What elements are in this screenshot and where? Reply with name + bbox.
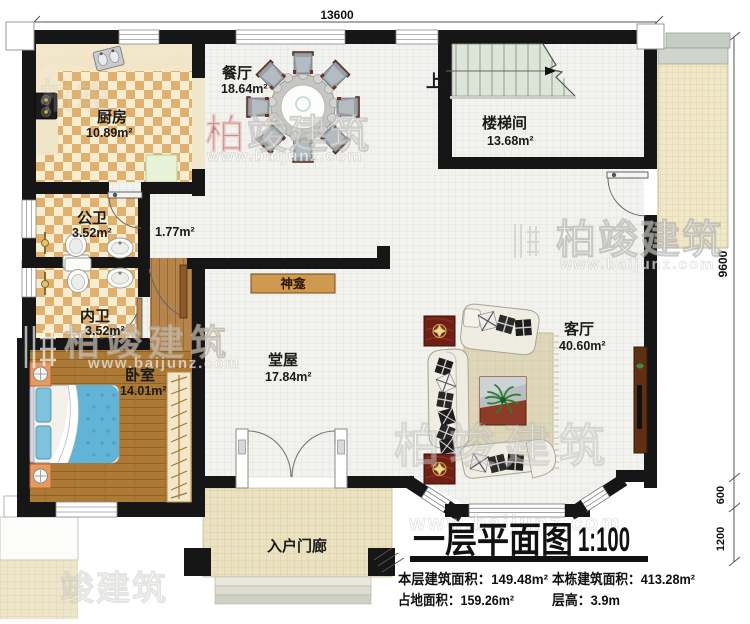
svg-text:卧室: 卧室 — [125, 366, 155, 384]
svg-text:www.baijunz.com: www.baijunz.com — [559, 256, 715, 273]
svg-text:厨房: 厨房 — [97, 108, 127, 126]
svg-text:1.77m²: 1.77m² — [155, 225, 195, 239]
svg-text:内卫: 内卫 — [80, 307, 110, 325]
svg-text:18.64m²: 18.64m² — [221, 82, 268, 96]
svg-text:1:100: 1:100 — [578, 521, 630, 559]
svg-text:40.60m²: 40.60m² — [559, 339, 606, 353]
svg-text:www.baijunz.com: www.baijunz.com — [206, 148, 363, 165]
svg-text:客厅: 客厅 — [563, 320, 594, 338]
svg-text:13600: 13600 — [320, 8, 354, 22]
svg-text:3.52m²: 3.52m² — [85, 324, 125, 338]
svg-text:公卫: 公卫 — [77, 210, 107, 227]
svg-text:10.89m²: 10.89m² — [86, 126, 133, 140]
svg-text:www.baijunz.com: www.baijunz.com — [87, 355, 240, 372]
svg-text:一层平面图: 一层平面图 — [413, 519, 573, 560]
svg-text:600: 600 — [715, 486, 727, 504]
svg-text:入户门廊: 入户门廊 — [267, 537, 327, 555]
svg-text:3.52m²: 3.52m² — [72, 226, 112, 240]
svg-text:17.84m²: 17.84m² — [265, 370, 312, 384]
svg-text:本栋建筑面积：413.28m²: 本栋建筑面积：413.28m² — [552, 571, 695, 587]
svg-text:上: 上 — [426, 72, 443, 91]
svg-text:本层建筑面积：149.48m²: 本层建筑面积：149.48m² — [398, 571, 548, 587]
svg-text:餐厅: 餐厅 — [222, 64, 252, 82]
svg-text:14.01m²: 14.01m² — [120, 384, 167, 398]
svg-text:楼梯间: 楼梯间 — [482, 114, 527, 132]
svg-text:堂屋: 堂屋 — [268, 351, 298, 369]
svg-text:神龛: 神龛 — [280, 276, 306, 291]
svg-text:柏竣建筑: 柏竣建筑 — [394, 420, 614, 472]
svg-text:层高：3.9m: 层高：3.9m — [552, 592, 620, 608]
svg-text:1200: 1200 — [715, 527, 727, 551]
svg-text:占地面积：159.26m²: 占地面积：159.26m² — [398, 592, 514, 608]
svg-text:竣建筑: 竣建筑 — [60, 569, 168, 608]
svg-text:13.68m²: 13.68m² — [487, 134, 534, 148]
